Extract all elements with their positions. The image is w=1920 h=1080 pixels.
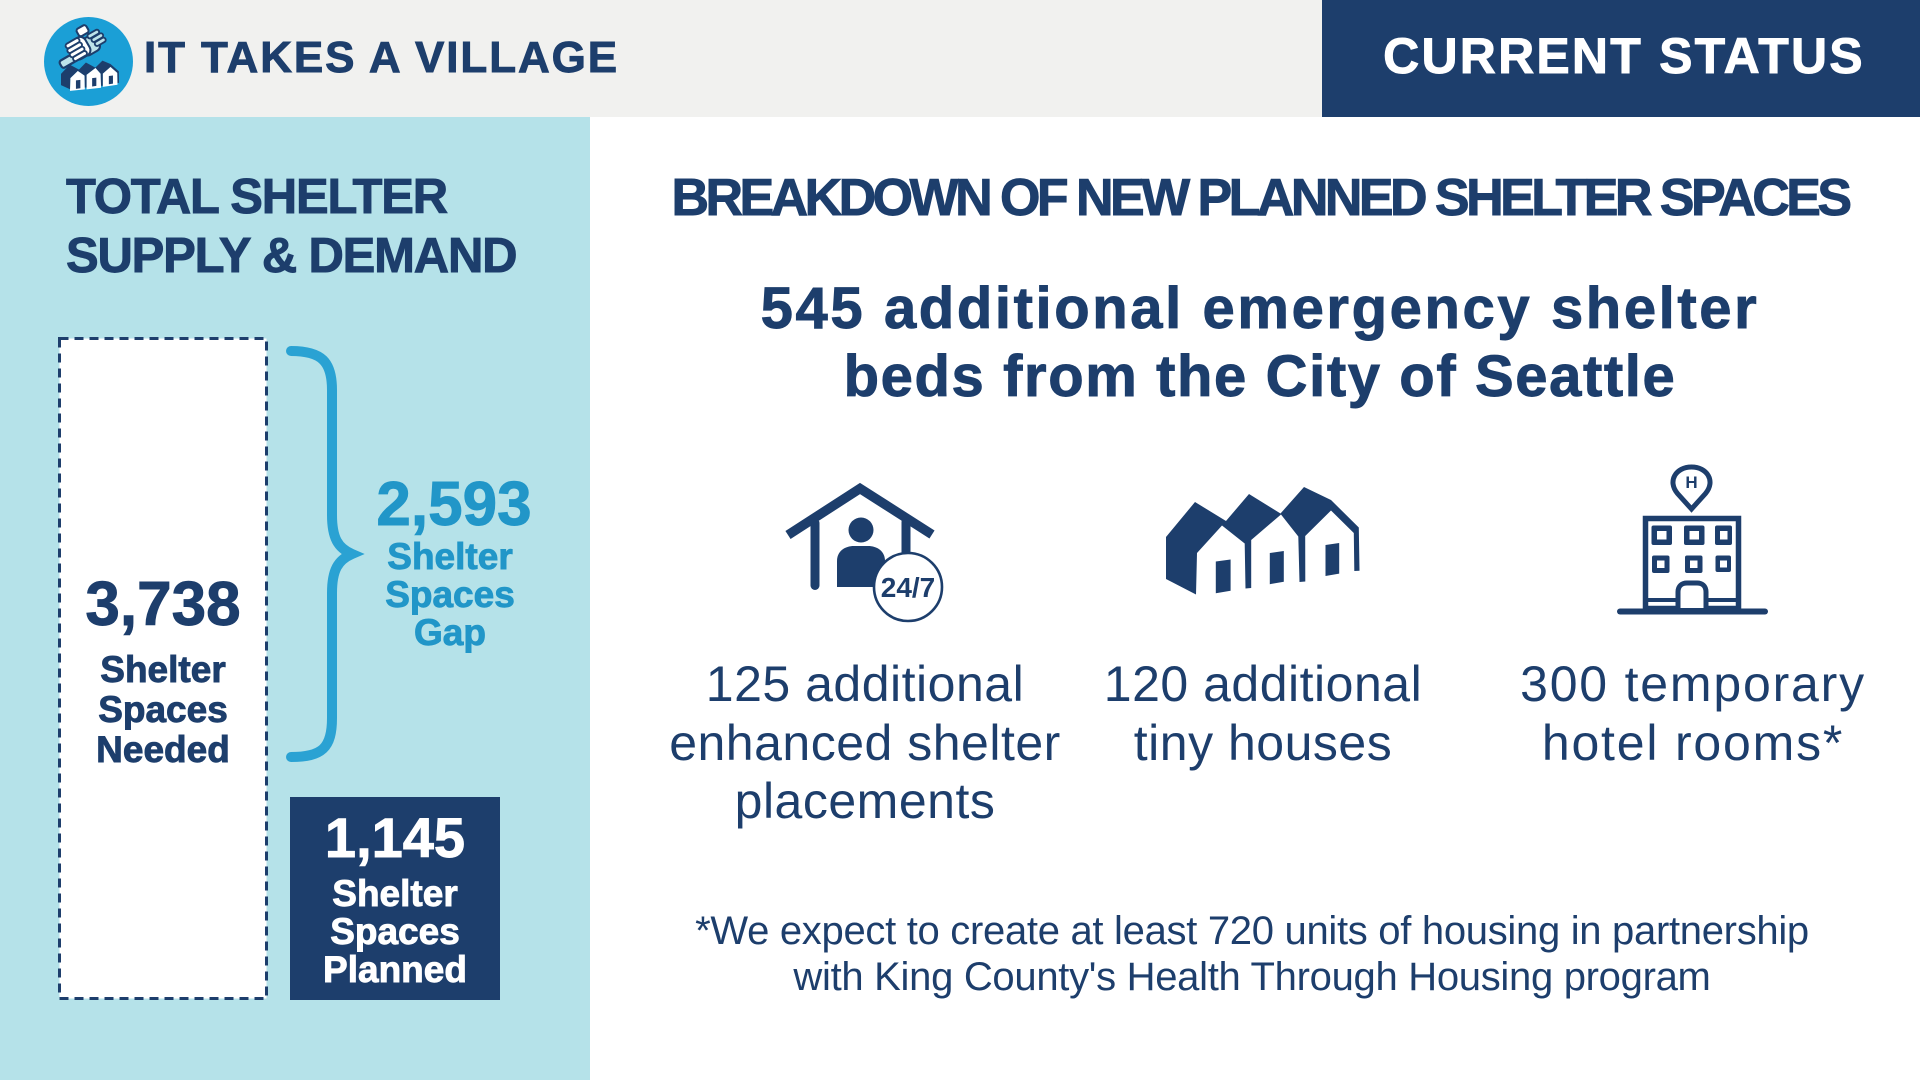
svg-text:H: H xyxy=(1685,473,1697,492)
svg-text:24/7: 24/7 xyxy=(881,572,936,603)
